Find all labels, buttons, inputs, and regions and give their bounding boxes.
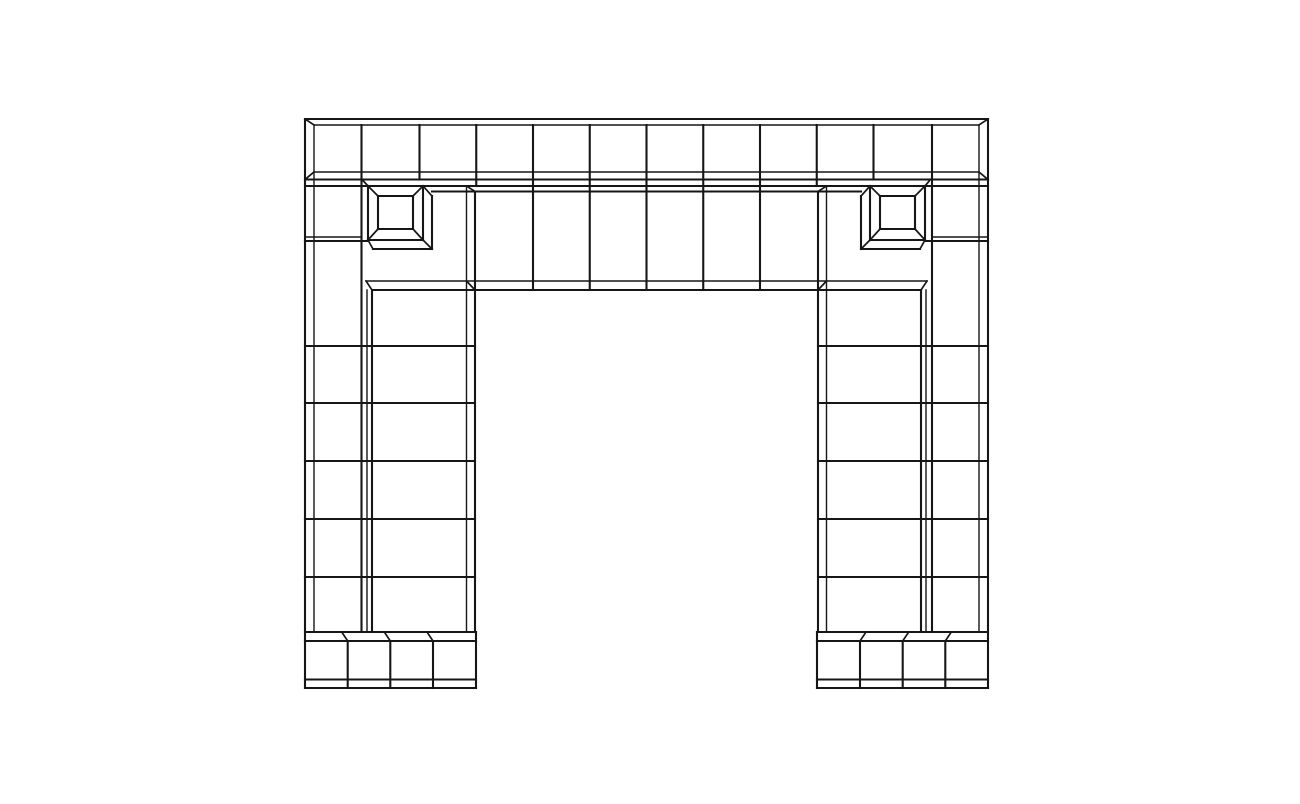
drawing-background: [0, 0, 1300, 804]
canvas: [0, 0, 1300, 804]
portal-wireframe-drawing: [0, 0, 1300, 804]
